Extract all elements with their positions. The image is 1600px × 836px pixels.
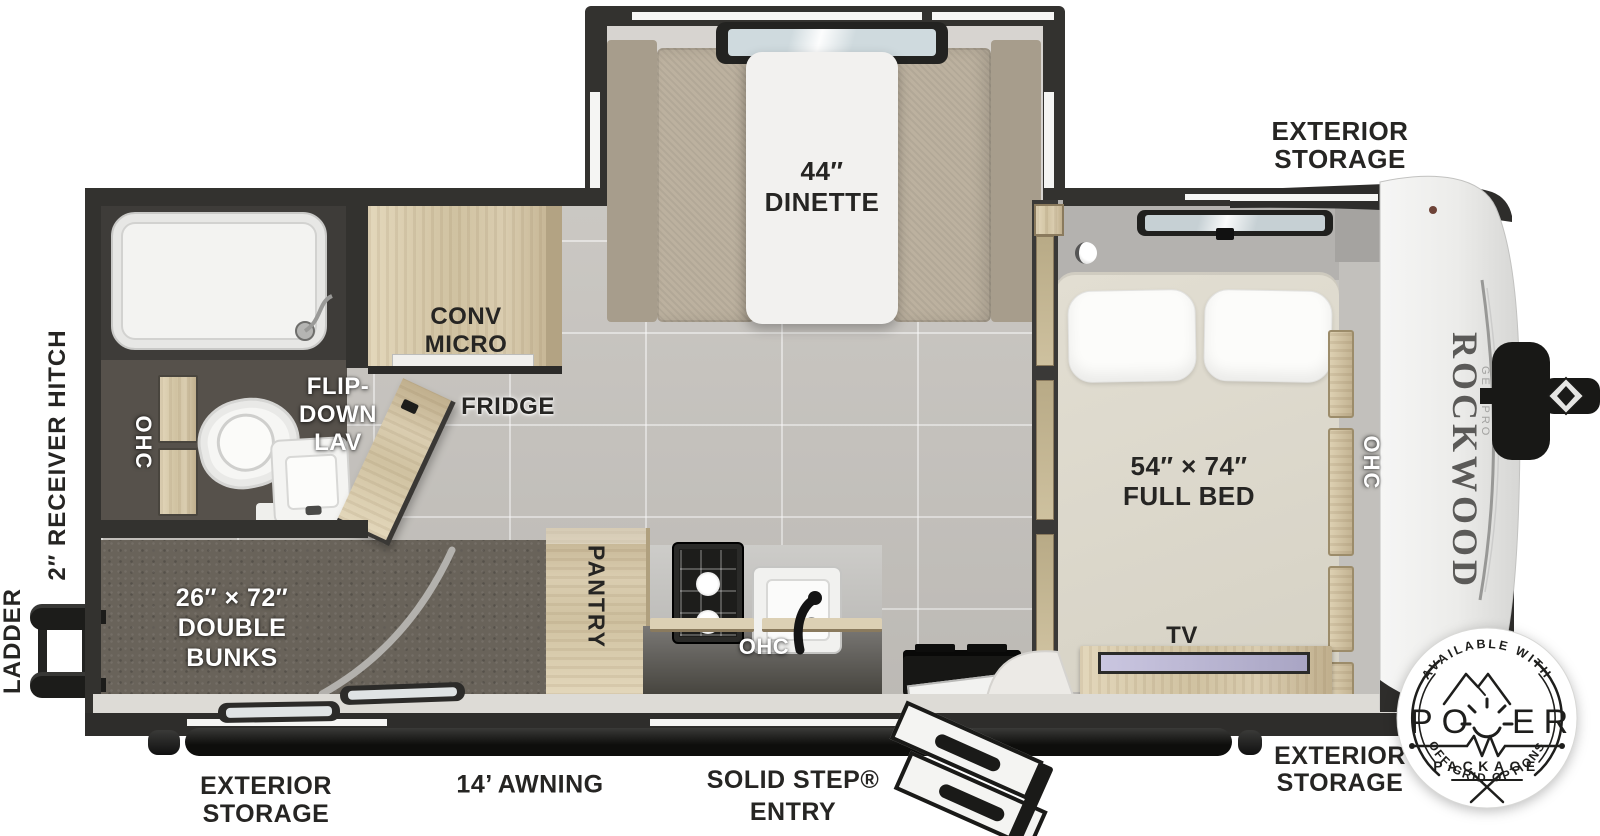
furnace-vent (915, 644, 955, 652)
divider-slat (1036, 236, 1054, 366)
bedroom-window-strip (1230, 194, 1378, 201)
badge-package: PACKAGE (1433, 758, 1540, 774)
burner (696, 572, 720, 596)
window-glass (348, 687, 457, 700)
divider-cap (1034, 204, 1064, 236)
bathroom-wall-bottom (85, 520, 368, 538)
label-full-bed: 54″ × 74″ FULL BED (1123, 451, 1255, 511)
tongue-jack (1492, 342, 1550, 460)
bathroom-wall (346, 188, 368, 368)
label-receiver-hitch: 2″ RECEIVER HITCH (44, 329, 72, 580)
label-exterior-storage-top: EXTERIOR STORAGE (1272, 117, 1409, 173)
clearance-light (1429, 206, 1437, 214)
slideout-side-window (590, 92, 600, 188)
label-solid-step-entry: SOLID STEP® ENTRY (707, 764, 880, 828)
dinette-bench-back (607, 40, 657, 322)
bathroom-ohc-cabinet-door (158, 375, 198, 443)
label-fridge: FRIDGE (461, 393, 555, 421)
label-dinette: 44″ DINETTE (765, 156, 880, 218)
bedroom-divider-wall (1032, 200, 1058, 700)
label-ohc-kitchen: OHC (739, 634, 789, 660)
badge-power-er: ER (1512, 703, 1577, 741)
pillow (1067, 289, 1197, 383)
tank-knob (1075, 242, 1097, 264)
double-bunks (101, 540, 546, 696)
rv-floorplan: ROCKWOOD GEO PRO EXTERIOR STORAGE 44″ DI… (0, 0, 1600, 836)
shower-tub (111, 212, 327, 350)
divider-dot (1409, 743, 1415, 749)
overhead-cabinet-shelf (650, 618, 754, 632)
sink-basin (285, 454, 340, 511)
step-slot (937, 782, 1007, 823)
toilet-seat (211, 408, 280, 477)
overhead-cabinet-shelf (762, 618, 882, 632)
label-ladder: LADDER (0, 588, 27, 694)
bunk-window (218, 701, 340, 723)
label-ohc-bath: OHC (130, 416, 156, 471)
wall-rear (85, 188, 101, 720)
window-glass (226, 706, 332, 718)
label-ohc-bed: OHC (1358, 436, 1384, 491)
label-tv: TV (1166, 622, 1198, 650)
slideout-side-window (1044, 92, 1054, 188)
dinette-bench-seat (657, 48, 755, 322)
door-handle (400, 399, 419, 415)
label-awning: 14’ AWNING (456, 771, 603, 800)
door-side-window (650, 719, 905, 726)
slideout-rear-window-strip (932, 12, 1054, 20)
label-exterior-storage-bottom-right: EXTERIOR STORAGE (1274, 743, 1406, 797)
cabinet-base (368, 366, 562, 374)
awning-end-cap (148, 730, 180, 755)
brand-name: ROCKWOOD (1445, 332, 1485, 590)
label-conv-micro: CONV MICRO (425, 303, 508, 359)
dinette-bench-seat (893, 48, 991, 322)
awning-roller (185, 728, 1232, 756)
power-package-badge: AVAILABLE WITH OFF-GRID OPTIONS PO ER PA… (1392, 624, 1584, 814)
divider-slat (1036, 534, 1054, 654)
furnace-vent (967, 644, 1007, 652)
label-flip-down-lav: FLIP- DOWN LAV (299, 373, 377, 457)
label-pantry: PANTRY (583, 545, 610, 649)
divider-dot (1559, 743, 1565, 749)
label-exterior-storage-bottom-left: EXTERIOR STORAGE (200, 772, 332, 828)
divider-slat (1036, 380, 1054, 520)
faucet (305, 505, 321, 515)
slideout-rear-window-strip (632, 12, 922, 20)
label-double-bunks: 26″ × 72″ DOUBLE BUNKS (176, 583, 289, 673)
bathroom-ohc-cabinet-door (158, 448, 198, 516)
